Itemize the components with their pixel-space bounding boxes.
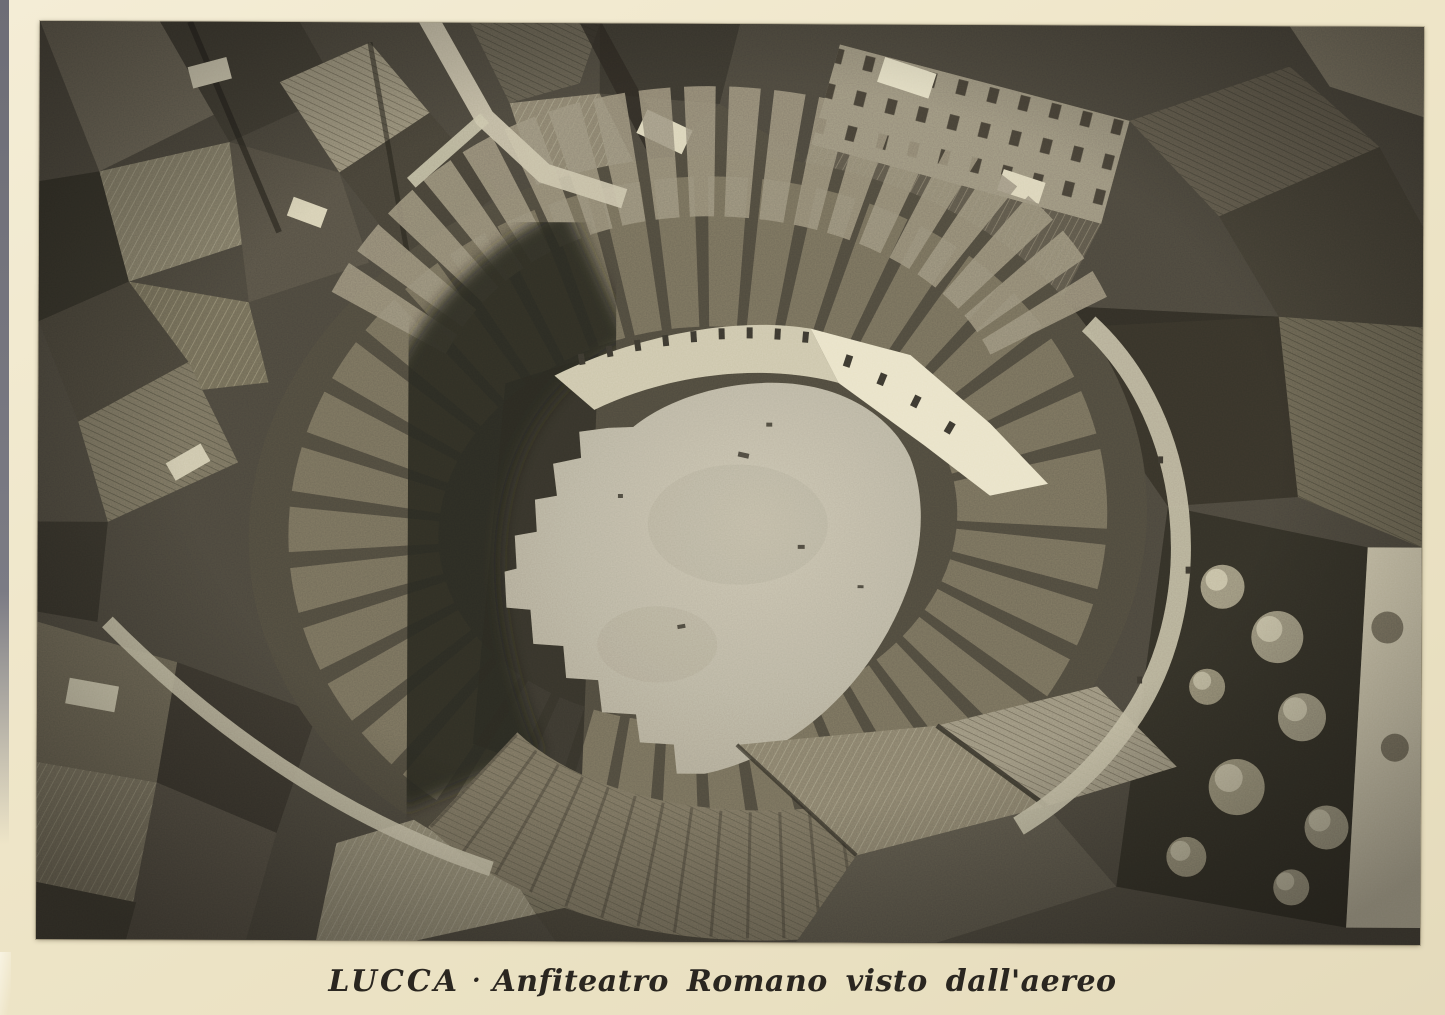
caption-separator: · (472, 965, 480, 994)
photo-effects (36, 21, 1424, 945)
corner-tear (0, 952, 11, 1015)
scan-edge-strip (0, 0, 9, 845)
postcard: LUCCA·Anfiteatro Romano visto dall'aereo (0, 0, 1445, 1015)
aerial-photo (36, 21, 1424, 945)
aerial-photo-scene (36, 21, 1424, 945)
caption-place: LUCCA (328, 964, 460, 999)
caption-title: Anfiteatro Romano visto dall'aereo (492, 964, 1116, 999)
vignette (36, 21, 1424, 945)
caption: LUCCA·Anfiteatro Romano visto dall'aereo (0, 956, 1445, 1004)
